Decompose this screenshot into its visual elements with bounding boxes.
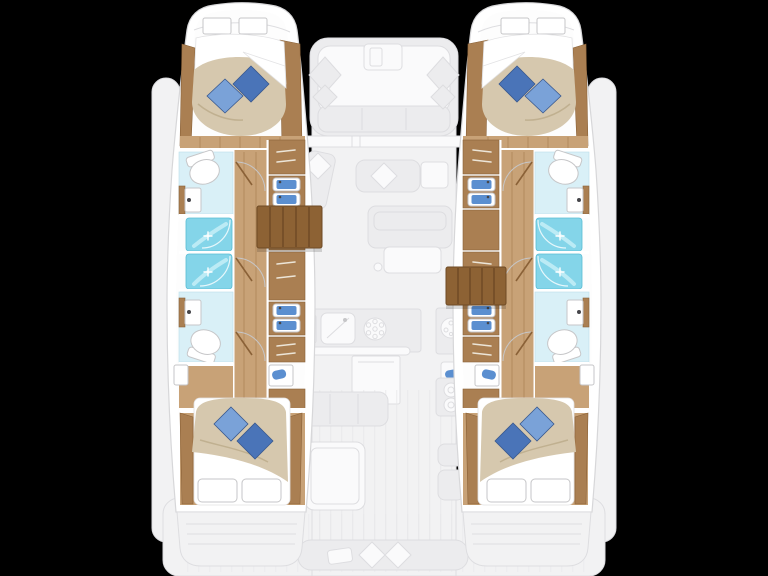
floor-plan-image [0,0,768,576]
cabinet [269,140,305,174]
foredeck-bench [318,106,450,132]
burner-hob [364,318,386,340]
stairs-shadow [257,248,322,252]
faucet [187,198,191,202]
stairs-starboard [446,267,506,309]
dinette-table [384,247,441,273]
bed-head-pillow [203,18,231,34]
bed-foot-pillow [198,479,237,502]
sink-faucet [343,318,347,322]
shower-stalls [179,214,233,292]
faucet [279,196,282,199]
stairs-block [257,206,322,248]
stairs-shadow [446,305,506,309]
stairs-port [257,206,322,252]
drawer-unit [269,337,305,362]
hull-port [167,3,315,566]
fore-bathroom [179,149,233,214]
bath-wall [179,251,233,254]
vanity-side [179,298,185,327]
galley-counter-left [299,309,421,352]
bath-wall [179,289,233,292]
aft-bathroom [179,292,233,412]
corridor-floor [233,150,268,412]
faucet [279,322,282,325]
bed-head-pillow [239,18,267,34]
faucet [187,310,191,314]
foredeck-lounge [309,38,459,136]
floor-plan-canvas [0,0,768,576]
vanity-side [179,186,185,214]
hull-corridor [232,150,268,412]
transom-steps [177,512,305,566]
stern-bench-cushion [327,547,353,564]
cockpit-table [305,442,365,510]
wood-panel [289,413,302,504]
coffee-table [421,162,448,188]
cabinet [269,252,305,300]
faucet [279,307,282,310]
nightstand [174,365,188,385]
wood-panel [180,413,193,504]
windshield-band [302,136,466,147]
faucet [279,181,282,184]
saloon-post [374,263,382,271]
stairs-block [446,267,506,305]
cockpit [298,378,468,570]
bed-foot-pillow [242,479,281,502]
bath-wall [179,214,233,218]
saloon-front-bulkhead [302,136,466,147]
